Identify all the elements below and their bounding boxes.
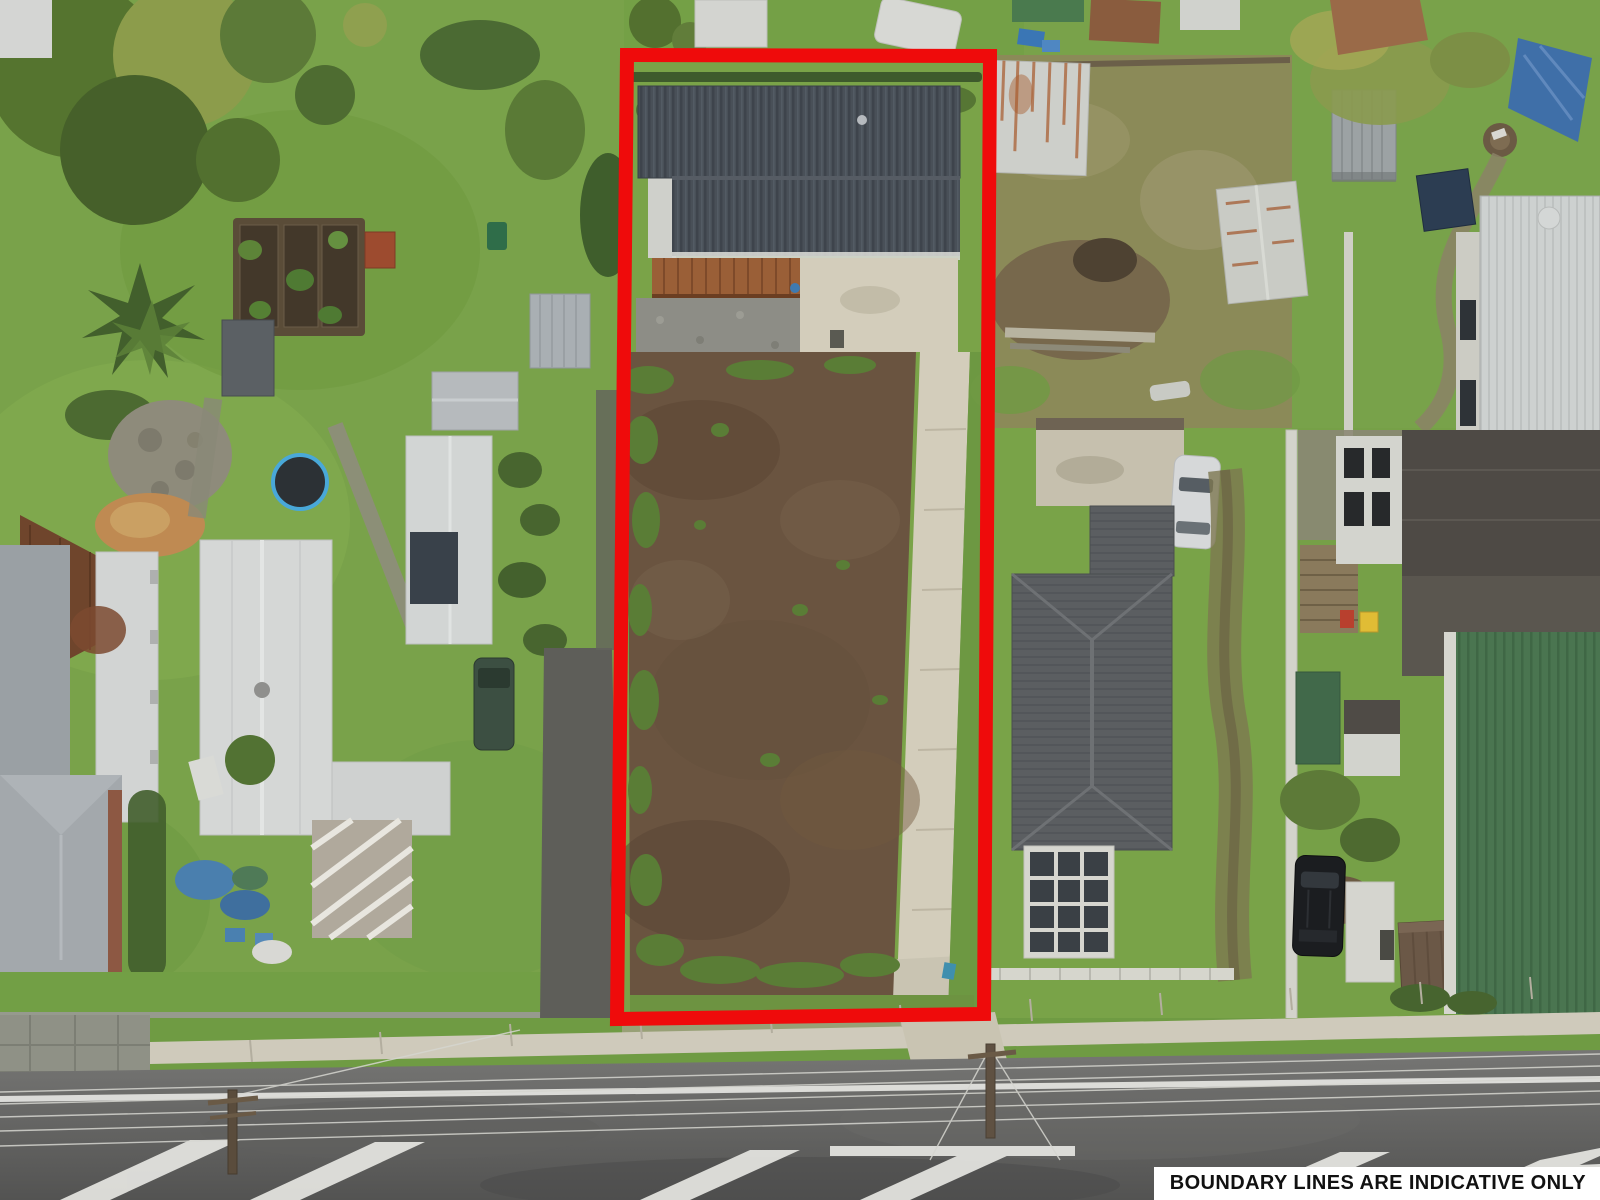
light-shed: [432, 372, 518, 430]
solar-panel: [410, 532, 458, 604]
autumn-shrub: [70, 606, 126, 654]
satellite-dish: [1538, 207, 1560, 229]
green-utility-vehicle: [474, 658, 514, 750]
subject-house: [638, 86, 960, 260]
red-roof-hutch: [365, 232, 395, 268]
aerial-photo: BOUNDARY LINES ARE INDICATIVE ONLY: [0, 0, 1600, 1200]
dark-roof-upper: [1402, 430, 1600, 576]
green-roof-top: [1012, 0, 1084, 22]
vegetable-garden: [233, 218, 365, 336]
black-suv: [1292, 855, 1345, 957]
front-fence-white: [982, 968, 1234, 980]
long-white-fence: [1286, 430, 1297, 1062]
boundary-disclaimer: BOUNDARY LINES ARE INDICATIVE ONLY: [1154, 1167, 1600, 1200]
green-water-tank: [487, 222, 507, 250]
solar-panel-ground: [1416, 169, 1475, 232]
subject-lot: [610, 55, 990, 1024]
subject-house-roof-rear: [638, 86, 960, 178]
subject-house-roof-front: [672, 178, 960, 256]
conservatory: [1024, 846, 1114, 958]
rusty-shed-a: [990, 60, 1090, 175]
dark-garden-shed: [222, 320, 274, 396]
rear-fence-hedge: [630, 72, 982, 82]
rust-roof-top: [1089, 0, 1161, 44]
white-shed-top: [695, 0, 767, 47]
driveway-drain: [830, 330, 844, 348]
yellow-bin: [1360, 612, 1378, 632]
grey-roof-left-edge: [0, 545, 70, 815]
left-neighbourhood: [0, 0, 636, 1024]
gravel-driveway: [540, 648, 620, 1020]
bare-earth-lot: [610, 352, 920, 1005]
aerial-photo-canvas: [0, 0, 1600, 1200]
neighbour-driveway-pad: [1036, 418, 1184, 506]
green-shed: [1296, 672, 1340, 764]
right-neighbourhood: [970, 0, 1600, 1064]
white-house-with-solar: [406, 436, 492, 644]
pergola-carport: [312, 820, 412, 938]
rusty-shed-b: [1216, 181, 1308, 304]
grey-hip-roof-house: [0, 775, 122, 1003]
trampoline: [273, 455, 327, 509]
red-bin: [1340, 610, 1354, 628]
iron-leanto: [530, 294, 590, 368]
big-green-roof: [1456, 632, 1600, 1014]
